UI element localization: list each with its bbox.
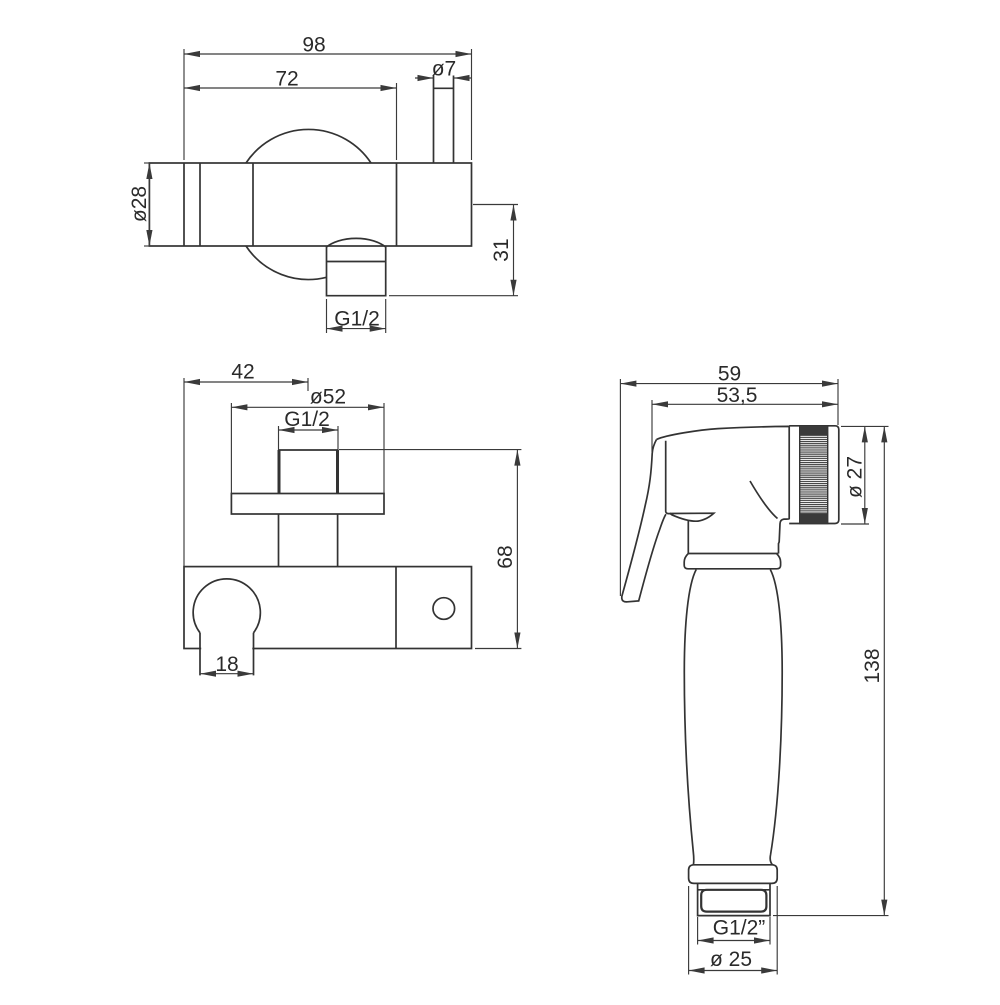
svg-text:31: 31 [490, 238, 513, 261]
svg-text:ø 25: ø 25 [710, 948, 752, 971]
svg-text:98: 98 [302, 34, 325, 57]
svg-text:68: 68 [494, 545, 517, 568]
svg-text:42: 42 [231, 361, 254, 384]
svg-text:ø 27: ø 27 [844, 456, 867, 498]
svg-text:72: 72 [275, 68, 298, 91]
svg-text:G1/2”: G1/2” [713, 917, 766, 940]
svg-text:ø28: ø28 [128, 186, 151, 222]
svg-text:18: 18 [215, 653, 238, 676]
svg-text:ø52: ø52 [310, 386, 346, 409]
svg-text:G1/2: G1/2 [334, 308, 380, 331]
svg-text:53,5: 53,5 [717, 384, 758, 407]
svg-text:59: 59 [718, 363, 741, 386]
svg-text:138: 138 [861, 648, 884, 683]
svg-text:ø7: ø7 [432, 58, 457, 81]
svg-text:G1/2: G1/2 [284, 408, 330, 431]
